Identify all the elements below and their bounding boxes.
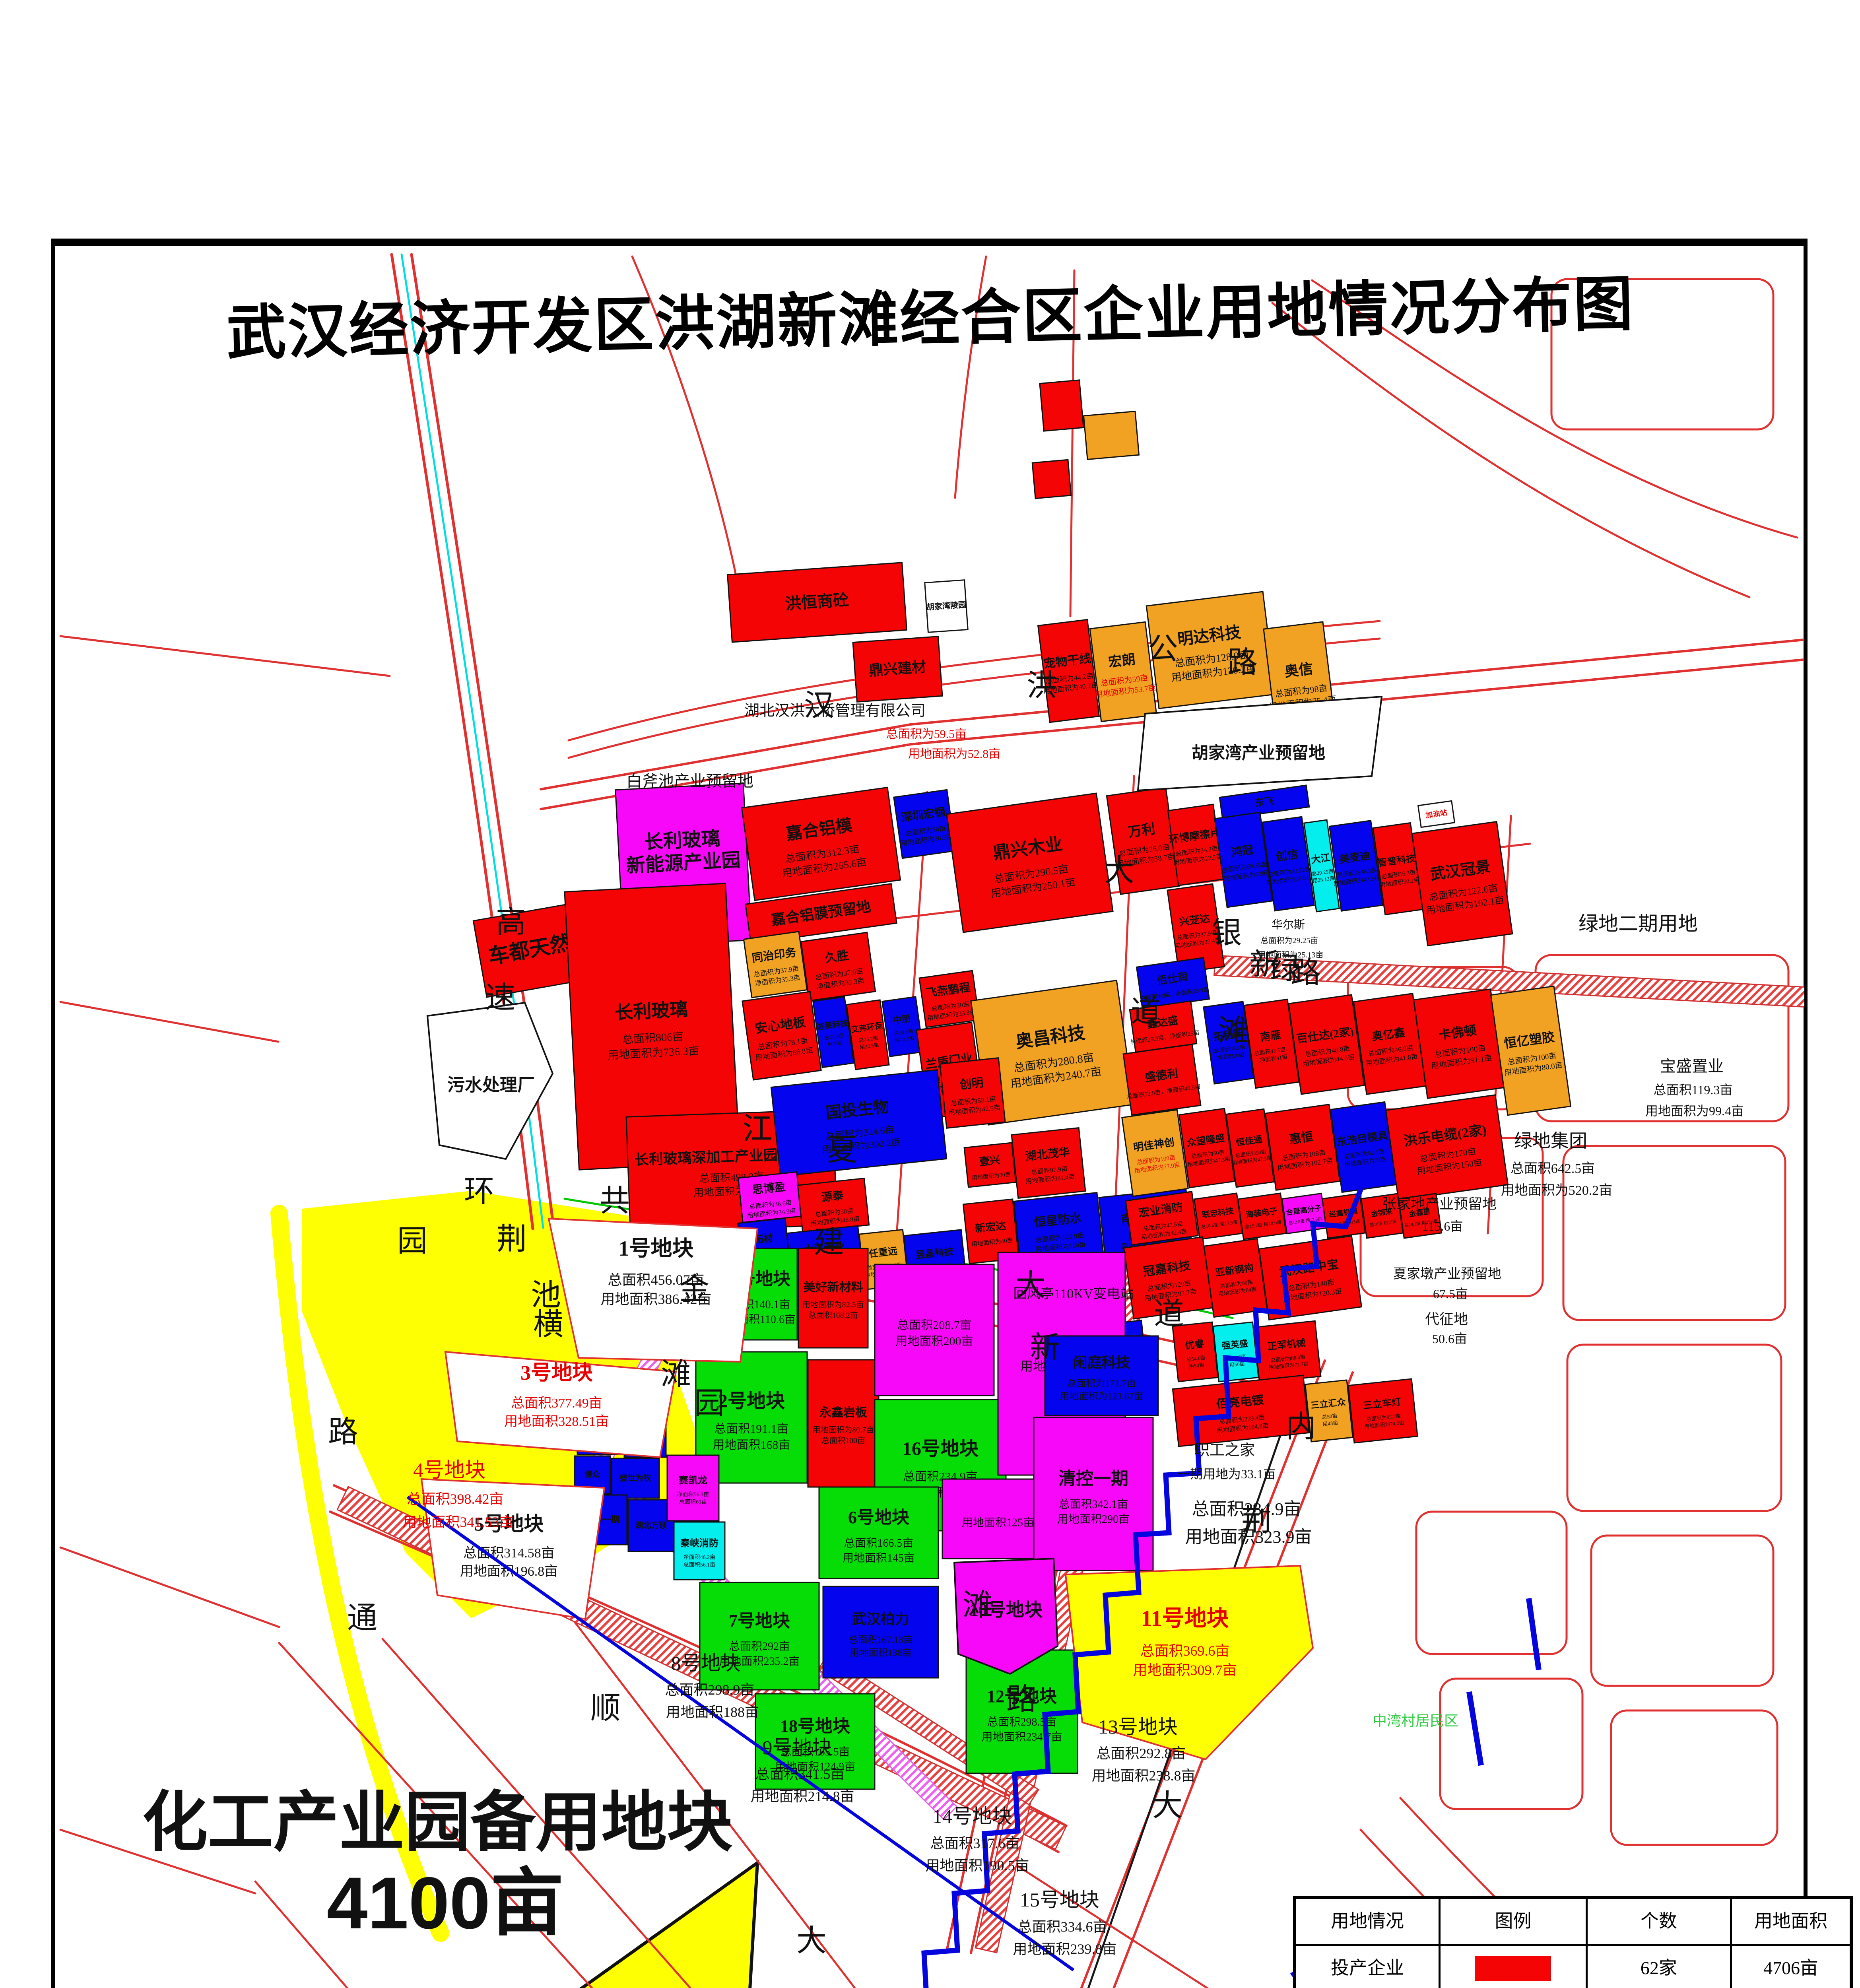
map-label: 15号地块 — [1020, 1889, 1099, 1911]
parcel-shape — [1083, 412, 1139, 460]
parcel-name: 博众 — [584, 1470, 600, 1479]
parcel-shape — [1414, 989, 1505, 1099]
parcel-shape — [1045, 1336, 1158, 1415]
parcel-亚新钢构: 亚新钢构总面积为90亩用地面积为84亩 — [1204, 1239, 1267, 1317]
parcel-area: 用地面积为82.5亩 — [802, 1300, 864, 1309]
road-name-label: 汉 — [804, 689, 834, 722]
parcel-洪恒商砼: 洪恒商砼 — [728, 563, 907, 642]
road-name-label: 园 — [694, 1387, 724, 1420]
parcel-shape — [1032, 460, 1071, 499]
parcel-area: 总面积69亩 — [679, 1499, 707, 1505]
parcel-鼎兴建材: 鼎兴建材 — [853, 637, 942, 702]
parcel-shape — [742, 992, 821, 1080]
map-label: 用地面积341.53亩 — [402, 1514, 513, 1530]
parcel-强英盛: 强英盛总54.6亩用50亩 — [1213, 1322, 1258, 1382]
road-line — [60, 636, 390, 676]
road-name-label: 荆 — [497, 1223, 527, 1256]
parcel-area: 总面积56.1亩 — [683, 1561, 716, 1568]
street-block-outline — [1563, 1146, 1785, 1320]
parcel-shape — [940, 1058, 1005, 1128]
road-name-label: 池 — [531, 1279, 561, 1312]
map-label: 4100亩 — [327, 1862, 564, 1944]
parcel-优睿: 优睿总54.6亩用50亩 — [1173, 1322, 1218, 1382]
expropriated-land-boundary-line — [894, 1972, 1328, 1988]
parcel-东飞: 东飞 — [1219, 785, 1309, 819]
map-label: 湖北汉洪大桥管理有限公司 — [744, 703, 926, 719]
parcel-name: 湖北万硕 — [635, 1521, 667, 1530]
parcel-盛德利: 盛德利总面积53.9亩，净面积40.5亩 — [1121, 1044, 1203, 1116]
parcel-武汉柏力: 武汉柏力总面积167.18亩用地面积138亩 — [823, 1586, 938, 1678]
road-name-label: 路 — [1227, 646, 1258, 679]
expropriated-land-boundary-line — [1529, 1598, 1539, 1670]
parcel-name: 闲庭科技 — [1073, 1355, 1130, 1371]
map-label: 用地面积为520.2亩 — [1501, 1183, 1613, 1198]
map-label: 用地面积238.8亩 — [1091, 1768, 1195, 1784]
parcel-area: 用地面积196.8亩 — [460, 1564, 558, 1579]
parcel-胡家湾产业预留地: 胡家湾产业预留地 — [1138, 697, 1382, 790]
map-label: 绿地集团 — [1514, 1131, 1587, 1151]
road-name-label: 共 — [600, 1184, 630, 1218]
parcel-美好新材料: 美好新材料用地面积为82.5亩总面积108.2亩 — [798, 1248, 868, 1348]
parcel-shape — [1168, 804, 1223, 885]
parcel-shape — [1012, 1128, 1085, 1198]
map-label: 绿地二期用地 — [1578, 912, 1698, 935]
street-block-outline — [1611, 1710, 1777, 1845]
parcel-洪乐电缆(2家): 洪乐电缆(2家)总面积为170亩用地面积为150亩 — [1386, 1095, 1508, 1200]
parcel-shape — [1265, 1105, 1340, 1190]
map-label: 一期用地为33.1亩 — [1177, 1467, 1276, 1481]
parcel-name: 源泰 — [821, 1189, 845, 1204]
road-name-label: 银 — [1212, 916, 1242, 950]
parcel-name: 7号地块 — [729, 1611, 790, 1631]
parcel-name: 1号地块 — [619, 1237, 694, 1260]
parcel-area: 总面积342.1亩 — [1058, 1498, 1128, 1510]
legend-header-row: 用地情况图例个数用地面积 — [1296, 1899, 1850, 1944]
parcel-block: 总面积208.7亩用地面积200亩 — [875, 1264, 994, 1396]
parcel-name: 2号地块 — [718, 1390, 785, 1411]
parcel-武汉冠景: 武汉冠景总面积为122.6亩用地面积为102.1亩 — [1412, 821, 1512, 945]
map-label: 用地面积190.5亩 — [925, 1858, 1029, 1873]
parcel-name: 3号地块 — [520, 1361, 593, 1384]
road-line — [60, 1547, 279, 1627]
map-label: 总面积398.42亩 — [407, 1491, 503, 1507]
road-name-label: 滩 — [963, 1589, 993, 1622]
parcel-惠恒: 惠恒总面积为108亩用地面积为102.7亩 — [1265, 1105, 1340, 1190]
parcel-嘉合铝模: 嘉合铝模总面积为312.3亩用地面积为265.6亩 — [742, 787, 900, 900]
parcel-area: 总面积166.5亩 — [844, 1537, 913, 1549]
parcel-源泰: 源泰总面积为50亩用地面积为46.8亩 — [798, 1178, 869, 1232]
parcel-shape — [1412, 821, 1512, 945]
road-name-label: 大 — [796, 1924, 827, 1958]
parcel-百仕达(2家): 百仕达(2家)总面积为48.8亩用地面积为44.5亩 — [1289, 995, 1364, 1094]
map-label: 夏家墩产业预留地 — [1393, 1266, 1501, 1281]
road-name-label: 荆 — [1241, 1504, 1272, 1537]
road-name-label: 道 — [1131, 995, 1161, 1029]
parcel-盛世为牧: 盛世为牧 — [612, 1458, 659, 1498]
legend-header-cell: 用地情况 — [1296, 1899, 1439, 1944]
map-label: 8号地块 — [671, 1652, 741, 1674]
parcel-shape — [1204, 1239, 1267, 1317]
legend-header-cell: 用地面积 — [1730, 1899, 1850, 1944]
road-name-label: 大 — [1104, 854, 1134, 887]
map-label: 50.6亩 — [1432, 1332, 1467, 1346]
parcel-1号地块: 1号地块总面积456.07亩用地面积386.42亩 — [549, 1219, 757, 1362]
parcel-思博盈: 思博盈总面积为36.6亩用地面积为34.9亩 — [738, 1172, 802, 1223]
parcel-shape — [1122, 1110, 1188, 1196]
parcel-area: 总面积369.6亩 — [1140, 1643, 1229, 1659]
map-label: 67.5亩 — [1433, 1287, 1468, 1301]
parcel-area: 用地面积为123.67亩 — [1060, 1391, 1144, 1402]
road-name-label: 路 — [1291, 956, 1321, 990]
parcel-武汉路中宝: 武汉路中宝总面积为140亩用地面积为120.3亩 — [1259, 1236, 1362, 1320]
parcel-明佳神创: 明佳神创总面积为100亩用地面积为77.9亩 — [1122, 1110, 1188, 1196]
parcel-name: 清控一期 — [1058, 1469, 1128, 1488]
parcel-shape — [1491, 986, 1571, 1115]
parcel-area: 净面积46.2亩 — [683, 1554, 716, 1561]
parcel-胡家湾陵园: 胡家湾陵园 — [925, 580, 968, 633]
parcel-shape — [1259, 1236, 1362, 1320]
road-name-label: 滩 — [1218, 1014, 1248, 1048]
map-label: 白斧池产业预留地 — [626, 772, 753, 790]
parcel-shape — [1040, 380, 1083, 431]
parcel-area: 总面积292亩 — [729, 1640, 790, 1653]
map-label: 总面积341.5亩 — [755, 1766, 845, 1782]
parcel-area: 用地面积234.7亩 — [981, 1731, 1062, 1743]
parcel-name: 武汉柏力 — [852, 1611, 909, 1627]
parcel-合晟高分子: 合晟高分子总12.8亩 用12.6亩 — [1282, 1193, 1326, 1233]
parcel-area: 总面积191.1亩 — [714, 1423, 789, 1436]
parcel-area: 总面积108.2亩 — [808, 1311, 858, 1320]
map-label: 总面积317.6亩 — [930, 1835, 1019, 1851]
road-name-label: 新 — [1030, 1331, 1060, 1365]
map-label: 115.6亩 — [1422, 1219, 1463, 1233]
legend-table: 用地情况图例个数用地面积投产企业62家4706亩在建企业24家1593亩待盘活企… — [1293, 1896, 1853, 1988]
parcel-area: 用地面积290亩 — [1057, 1513, 1130, 1526]
map-label: 4号地块 — [413, 1459, 485, 1482]
parcel-秦峡消防: 秦峡消防净面积46.2亩总面积56.1亩 — [674, 1522, 725, 1580]
road-name-label: 江 — [742, 1112, 773, 1146]
map-label: 总面积642.5亩 — [1511, 1161, 1595, 1176]
parcel-赛凯龙: 赛凯龙净面积56.3亩总面积69亩 — [667, 1455, 719, 1521]
legend-header-cell: 个数 — [1586, 1899, 1730, 1944]
parcel-block — [1040, 380, 1083, 431]
road-name-label: 环 — [464, 1175, 494, 1208]
parcel-同治印务: 同治印务总面积为37.9亩净面积为35.3亩 — [744, 932, 807, 998]
parcel-飞燕鹏程: 飞燕鹏程总面积为30亩用地面积为23.8亩 — [919, 971, 979, 1027]
parcel-污水处理厂: 污水处理厂 — [427, 1003, 553, 1159]
parcel-name: 18号地块 — [780, 1716, 850, 1736]
map-label: 宝盛置业 — [1660, 1057, 1724, 1075]
street-block-outline — [1567, 1345, 1781, 1511]
street-block-outline — [1591, 1536, 1773, 1686]
road-name-label: 大 — [1015, 1269, 1046, 1302]
parcel-shape — [808, 1360, 879, 1487]
parcel-area: 总面积为171.7亩 — [1067, 1378, 1136, 1389]
parcel-shape — [742, 787, 900, 900]
parcel-name: 胡家湾产业预留地 — [1192, 744, 1325, 763]
parcel-block — [1083, 412, 1139, 460]
map-label: 14号地块 — [932, 1805, 1012, 1827]
parcel-shape — [947, 793, 1113, 932]
parcel-安心地板: 安心地板总面积为78.1亩用地面积为66.8亩 — [742, 992, 821, 1080]
road-name-label: 速 — [485, 981, 515, 1015]
parcel-鼎兴木业: 鼎兴木业总面积为290.5亩用地面积为250.1亩 — [947, 793, 1113, 932]
legend-swatch-cell — [1439, 1946, 1586, 1988]
map-label: 华尔斯 — [1272, 918, 1305, 931]
parcel-三立车灯: 三立车灯总面积为95.2亩用地面积为74.2亩 — [1348, 1379, 1417, 1443]
parcel-加油站: 加油站 — [1418, 801, 1455, 827]
parcel-area: 用地面积200亩 — [896, 1335, 973, 1348]
map-label: 总面积为59.5亩 — [886, 728, 967, 741]
parcel-shape — [882, 997, 924, 1056]
map-label: 代征地 — [1425, 1311, 1468, 1327]
map-label: 化工产业园备用地块 — [142, 1786, 733, 1859]
parcel-shape — [819, 1487, 938, 1578]
parcel-block — [1032, 460, 1071, 499]
parcel-创明: 创明总面积为53.1亩用地面积为42.5亩 — [940, 1058, 1005, 1128]
road-name-label: 路 — [1006, 1683, 1037, 1716]
parcel-shape — [1386, 1095, 1508, 1200]
road-name-label: 道 — [1154, 1297, 1184, 1331]
parcel-name: 污水处理厂 — [447, 1076, 535, 1095]
map-label: 总面积119.3亩 — [1654, 1083, 1733, 1097]
road-name-label: 路 — [328, 1415, 358, 1449]
map-label: 13号地块 — [1098, 1716, 1178, 1738]
parcel-area: 总面积377.49亩 — [511, 1396, 602, 1411]
map-label: 用地面积214.8亩 — [750, 1788, 854, 1804]
road-name-label: 横 — [533, 1308, 563, 1342]
parcel-area: 用地面积168亩 — [713, 1439, 790, 1452]
parcel-name: 16号地块 — [902, 1438, 979, 1459]
road-name-label: 高 — [496, 906, 526, 939]
parcel-shape — [771, 1070, 946, 1176]
parcel-shape — [667, 1455, 719, 1521]
parcel-宏业消防: 宏业消防总面积为47.5亩用地面积为42.4亩 — [1126, 1192, 1198, 1245]
parcel-shape — [1138, 697, 1382, 790]
parcel-area: 净面积56.3亩 — [677, 1491, 709, 1498]
road-name-label: 金 — [679, 1273, 709, 1306]
map-label: 用地面积239.8亩 — [1013, 1941, 1116, 1957]
parcel-area: 总面积167.18亩 — [848, 1635, 913, 1645]
map-label: 职工之家 — [1194, 1442, 1255, 1459]
street-block-outline — [1440, 1679, 1582, 1809]
parcel-area: 用地面积为80.7亩 — [813, 1425, 874, 1435]
parcel-name: 11号地块 — [1141, 1606, 1229, 1631]
parcel-area: 总面积208.7亩 — [897, 1319, 972, 1332]
parcel-name: 秦峡消防 — [680, 1538, 718, 1549]
road-name-label: 通 — [347, 1602, 377, 1635]
map-label: 用地面积为52.8亩 — [908, 747, 1001, 761]
road-name-label: 园 — [397, 1225, 427, 1258]
road-name-label: 洪 — [1027, 669, 1057, 703]
legend-area: 4706亩 — [1730, 1946, 1850, 1988]
map-label: 中湾村居民区 — [1373, 1713, 1458, 1729]
parcel-area: 用地面积328.51亩 — [504, 1414, 609, 1429]
road-name-label: 顺 — [590, 1692, 621, 1725]
legend-label: 投产企业 — [1296, 1946, 1439, 1988]
road-name-label: 夏 — [827, 1134, 857, 1167]
legend-header-cell: 图例 — [1439, 1899, 1586, 1944]
parcel-shape — [1173, 1322, 1218, 1382]
map-label: 张家地产业预留地 — [1382, 1196, 1497, 1212]
map-label: 总面积292.8亩 — [1096, 1745, 1186, 1761]
parcel-中朋: 中朋总30.6亩用22.2亩 — [882, 997, 924, 1056]
parcel-name: 创明 — [959, 1076, 984, 1091]
parcel-shape — [1254, 1321, 1321, 1382]
street-block-outline — [1416, 1512, 1567, 1654]
parcel-name: 盛世为牧 — [619, 1473, 652, 1483]
expropriated-land-boundary-line — [1469, 1692, 1481, 1765]
parcel-name: 美好新材料 — [804, 1280, 863, 1294]
parcel-name: 永鑫岩板 — [819, 1406, 867, 1419]
parcel-name: 6号地块 — [848, 1508, 909, 1527]
parcel-area: 用地面积145亩 — [843, 1552, 915, 1565]
parcel-湖北茂华: 湖北茂华总面积97.9亩用地面积为81.4亩 — [1012, 1128, 1085, 1198]
map-label: 总面积334.6亩 — [1017, 1919, 1107, 1935]
parcel-name: 赛凯龙 — [678, 1475, 707, 1486]
parcel-shape — [1090, 622, 1157, 721]
parcel-shape — [823, 1586, 938, 1678]
parcel-正军机械: 正军机械总面积为88.4亩用地面积为72.7亩 — [1254, 1321, 1321, 1382]
parcel-国投生物: 国投生物总面积为324.6亩用地面积为300.2亩 — [771, 1070, 946, 1176]
legend-swatch-red — [1475, 1956, 1551, 1981]
parcel-6号地块: 6号地块总面积166.5亩用地面积145亩 — [819, 1487, 938, 1578]
legend-row: 投产企业62家4706亩 — [1296, 1944, 1850, 1988]
road-line — [60, 1002, 278, 1042]
parcel-卡佛顿: 卡佛顿总面积为100亩用地面积为91.1亩 — [1414, 989, 1505, 1099]
parcel-area: 用地面积125亩 — [962, 1516, 1034, 1529]
legend-count: 62家 — [1586, 1946, 1730, 1988]
parcel-闲庭科技: 闲庭科技总面积为171.7亩用地面积为123.67亩 — [1045, 1336, 1158, 1415]
road-name-label: 建 — [814, 1226, 844, 1259]
parcel-恒亿塑胶: 恒亿塑胶总面积为100亩用地面积为80.0亩 — [1491, 986, 1571, 1115]
parcel-海装电子: 海装电子总19.2亩 用18.0亩 — [1238, 1193, 1286, 1239]
parcel-name: 壹兴 — [979, 1154, 1001, 1168]
road-name-label: 内 — [1286, 1410, 1316, 1444]
parcel-shape — [1348, 1379, 1417, 1443]
road-name-label: 滩 — [661, 1358, 691, 1391]
map-label: 用地面积为99.4亩 — [1645, 1104, 1744, 1118]
parcel-area: 用地面积309.7亩 — [1133, 1662, 1237, 1678]
map-label: 总面积298.9亩 — [665, 1682, 754, 1698]
parcel-久胜: 久胜总面积为37.9亩净面积为35.3亩 — [801, 932, 875, 1001]
parcel-永鑫岩板: 永鑫岩板用地面积为80.7亩总面积100亩 — [808, 1360, 879, 1487]
map-label: 用地面积188亩 — [666, 1704, 759, 1720]
parcel-shape — [801, 932, 875, 1001]
parcel-area: 总面积100亩 — [821, 1436, 865, 1445]
parcel-壹兴: 壹兴用地面积为30亩 — [964, 1143, 1016, 1187]
map-label: 9号地块 — [763, 1736, 832, 1759]
road-name-label: 公 — [1148, 633, 1178, 666]
parcel-深圳宏钢: 深圳宏钢总面积为50亩用地面积为38.3亩 — [894, 790, 955, 858]
parcel-name: 长利玻璃 — [644, 828, 721, 853]
map-label: 总面积为29.25亩 — [1261, 936, 1318, 945]
parcel-shape — [798, 1248, 868, 1348]
parcel-联忠科技: 联忠科技总18.6亩 用17.5亩 — [1194, 1193, 1242, 1239]
parcel-area: 用地面积138亩 — [850, 1648, 912, 1658]
parcel-shape — [1213, 1322, 1258, 1382]
parcel-name: 长利玻璃 — [614, 999, 688, 1023]
parcel-shape — [674, 1522, 725, 1580]
road-name-label: 大 — [1152, 1789, 1182, 1823]
